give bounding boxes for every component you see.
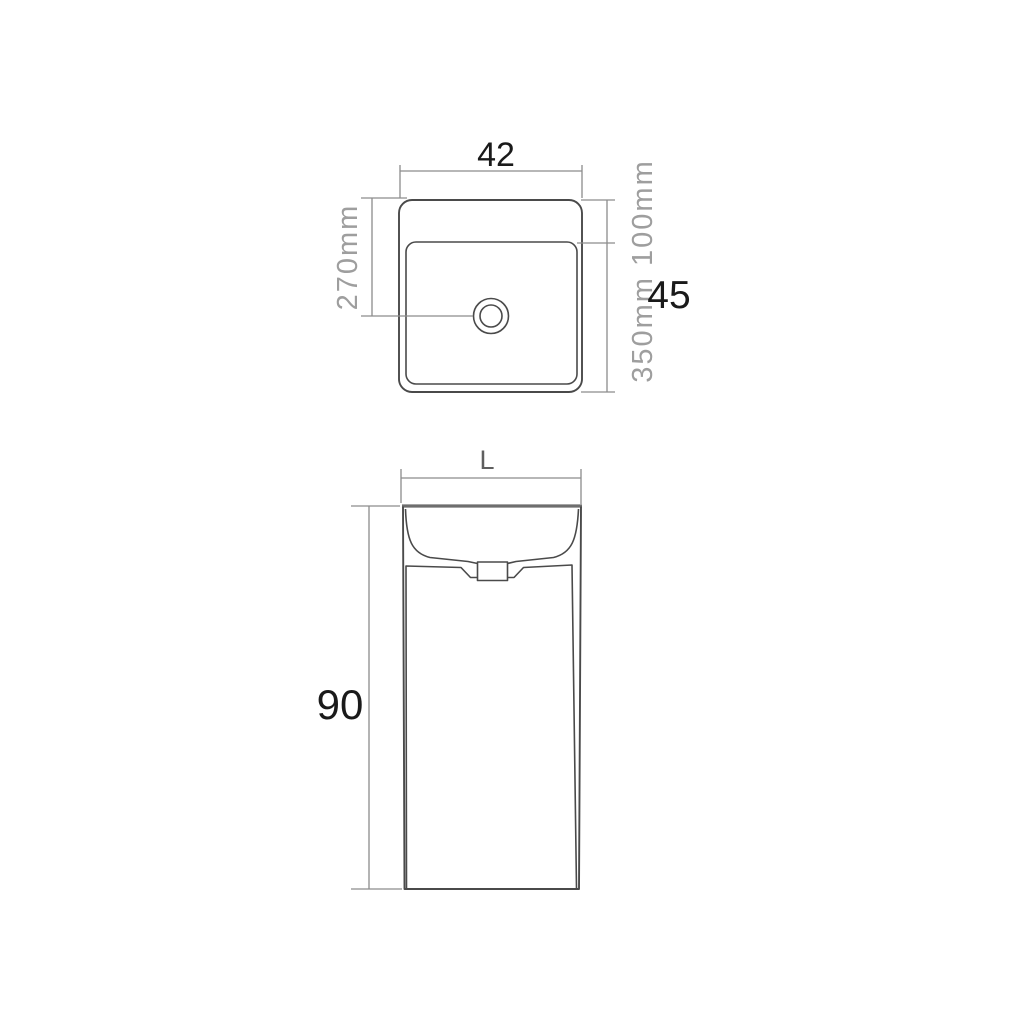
top-view <box>399 200 582 392</box>
basin-technical-drawing: 42 270mm 350mm 100mm 45 <box>0 0 1024 1024</box>
drawing-stage: 42 270mm 350mm 100mm 45 <box>0 0 1024 1024</box>
top-depth-dim-label: 45 <box>647 274 690 317</box>
bowl-interior-right <box>508 509 579 564</box>
panel-edge-right <box>508 565 577 888</box>
drain-outer-circle <box>474 299 509 334</box>
basin-outer-rim <box>399 200 582 392</box>
front-width-dim-label: L <box>479 445 494 475</box>
drain-front-rect <box>478 562 508 581</box>
depth-split-dim-label: 350mm 100mm <box>627 159 659 382</box>
front-height-dim-label: 90 <box>317 681 364 728</box>
drain-inner-circle <box>480 305 502 327</box>
bowl-interior-left <box>406 509 478 564</box>
pedestal-outline <box>403 507 581 890</box>
front-view <box>402 506 582 889</box>
panel-edge-left <box>406 566 478 888</box>
front-view-dimensions <box>351 469 581 889</box>
top-width-dim-label: 42 <box>477 136 515 174</box>
basin-bowl <box>406 242 577 384</box>
drain-offset-dim-label: 270mm <box>332 204 364 311</box>
